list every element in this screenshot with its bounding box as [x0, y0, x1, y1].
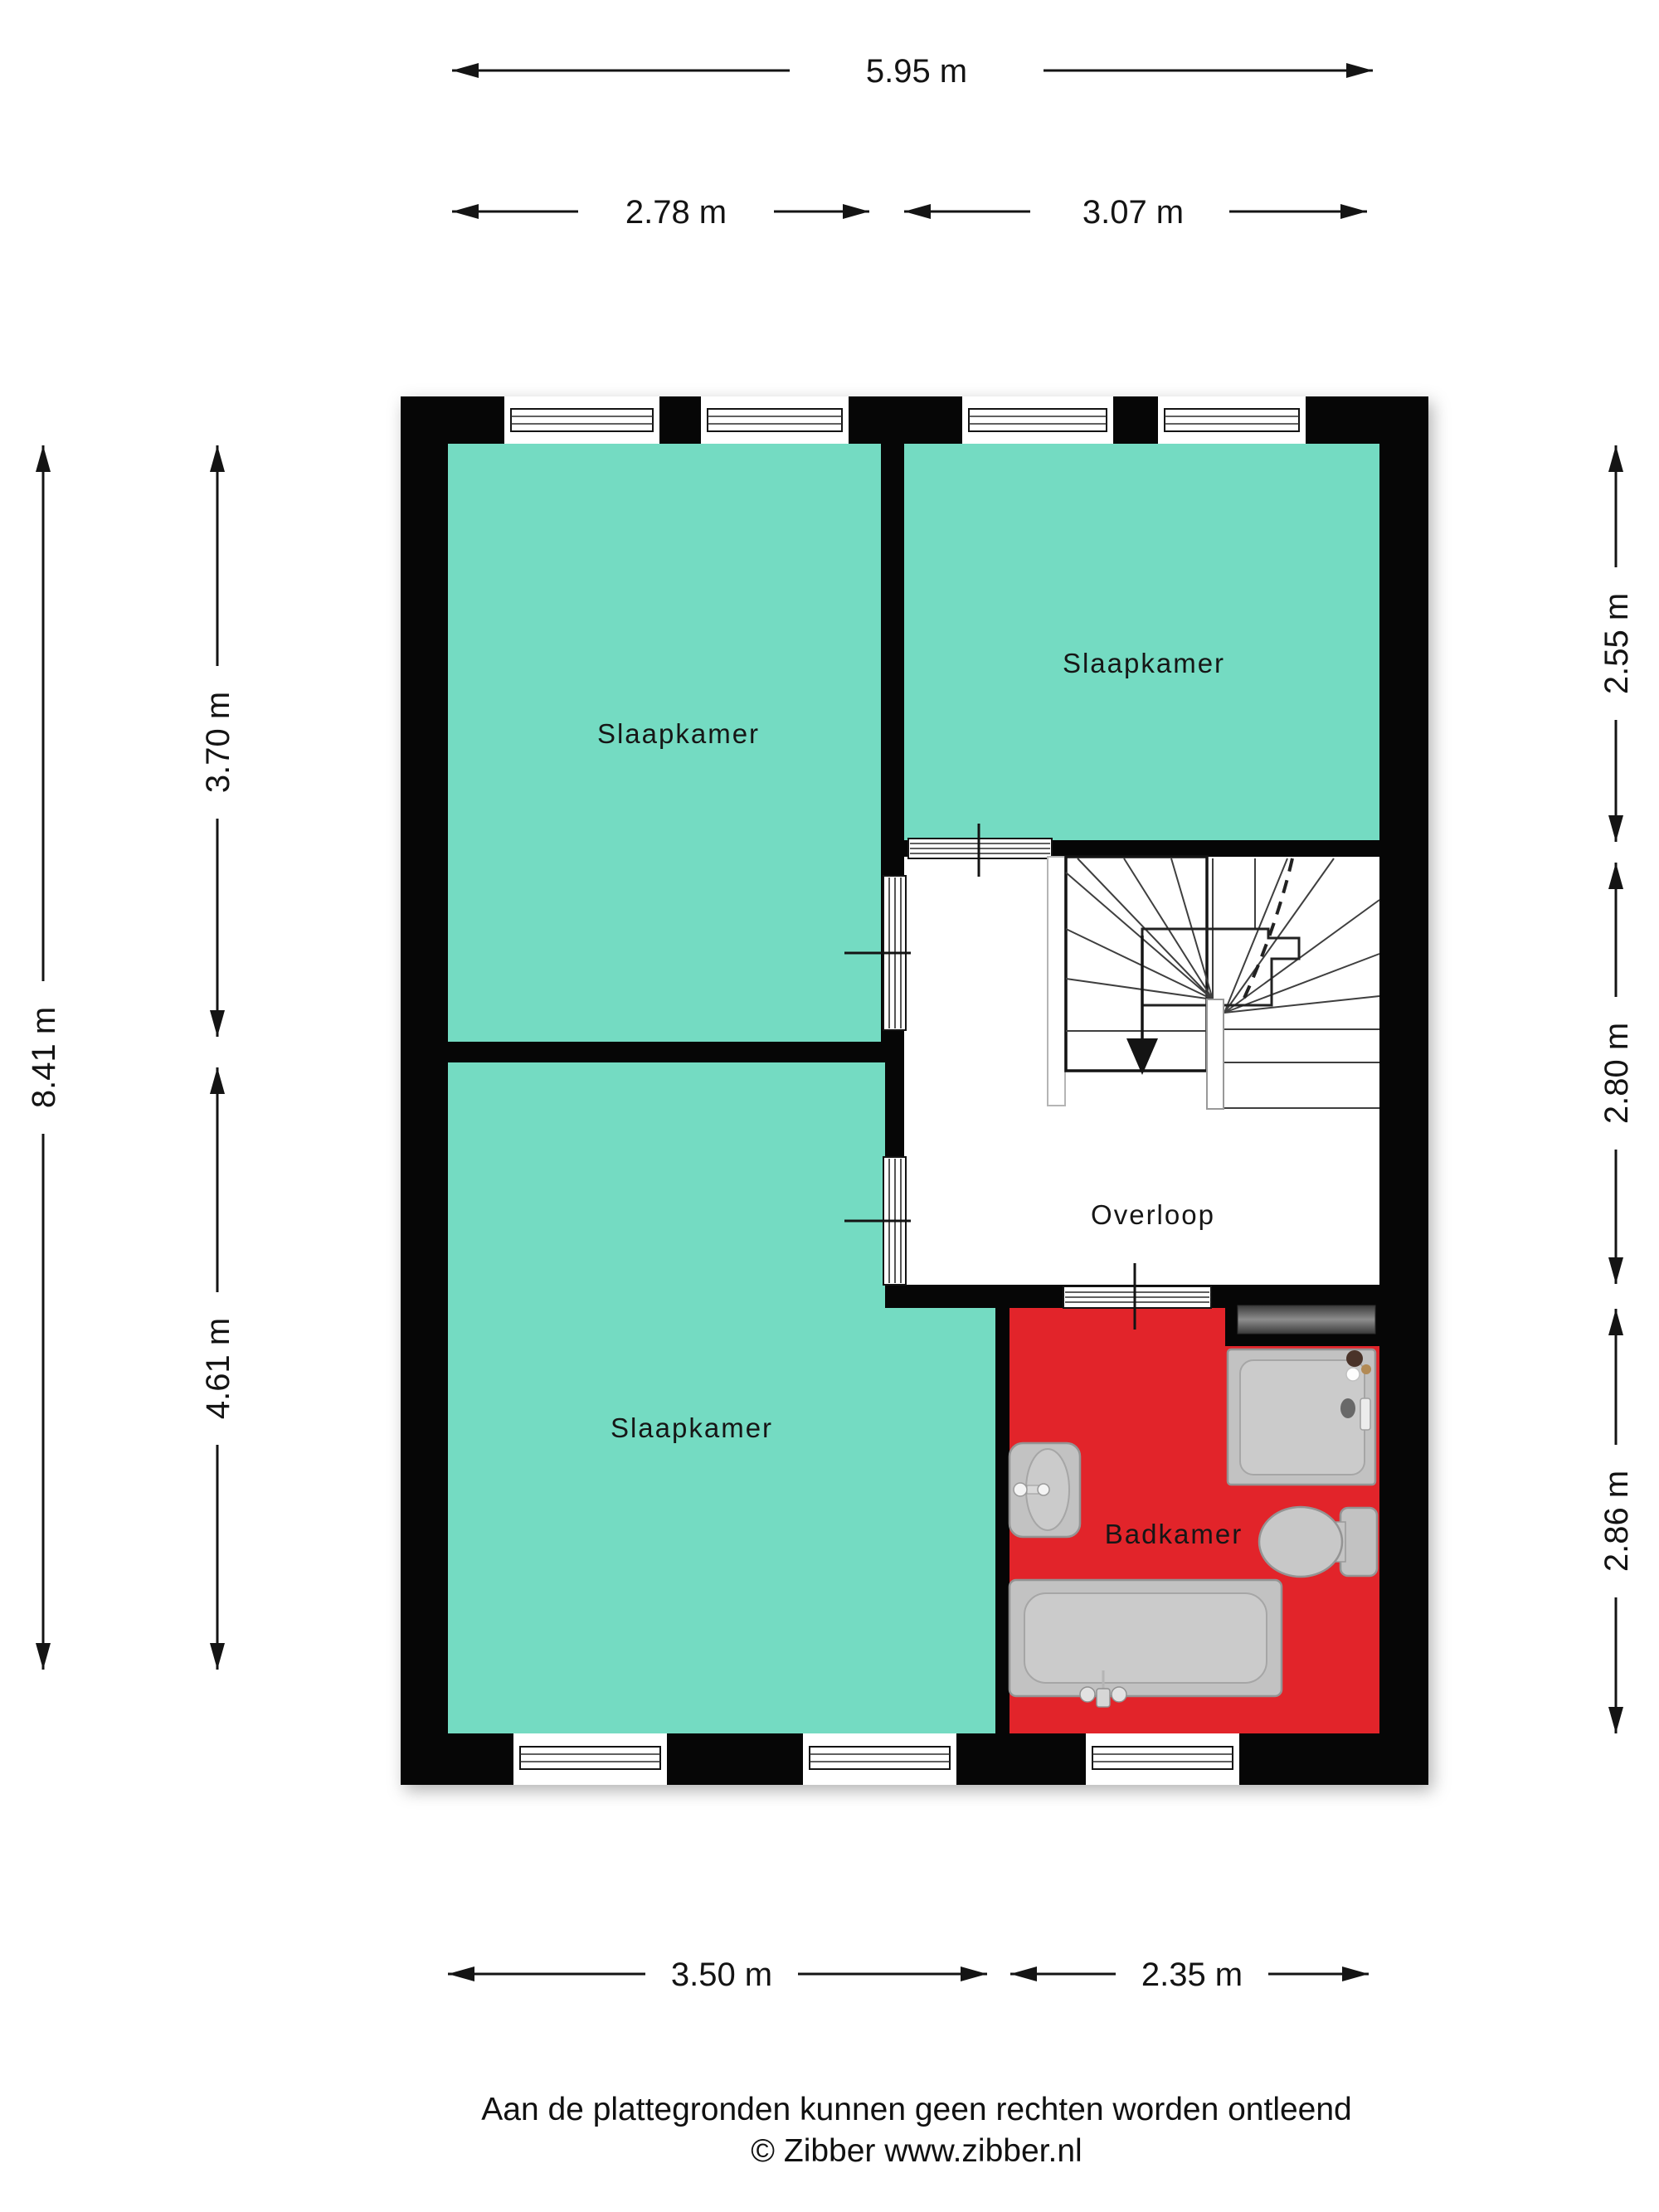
bathtub-faucet-icon: [1097, 1689, 1110, 1707]
arrow-up-icon: [1608, 445, 1623, 472]
shower-head-icon: [1340, 1398, 1355, 1418]
shower-drain-icon: [1346, 1350, 1363, 1367]
shower: [1228, 1349, 1375, 1485]
footer-disclaimer: Aan de plattegronden kunnen geen rechten…: [481, 2092, 1352, 2127]
room-slaapkamer-top-right: [904, 444, 1379, 840]
dimension-top-right-segment: 3.07 m: [904, 194, 1367, 231]
window-top-2: [701, 396, 849, 444]
arrow-up-icon: [210, 1067, 225, 1094]
arrow-up-icon: [1608, 863, 1623, 889]
dimension-right-middle-segment: 2.80 m: [1598, 863, 1635, 1284]
dimension-left-upper-segment: 3.70 m: [200, 445, 236, 1037]
arrow-right-icon: [1346, 63, 1373, 78]
arrow-right-icon: [961, 1966, 987, 1981]
arrow-down-icon: [1608, 1707, 1623, 1733]
sink: [1010, 1443, 1080, 1537]
arrow-right-icon: [843, 204, 869, 219]
arrow-down-icon: [1608, 815, 1623, 842]
window-top-1: [504, 396, 659, 444]
dimension-label: 2.86 m: [1598, 1471, 1635, 1572]
bathtub: [1010, 1580, 1282, 1707]
arrow-up-icon: [36, 445, 51, 472]
dimension-label: 3.50 m: [671, 1957, 772, 1993]
room-label-slaapkamer-bottom: Slaapkamer: [611, 1412, 773, 1443]
arrow-down-icon: [36, 1643, 51, 1670]
dimension-label: 3.07 m: [1082, 194, 1184, 231]
arrow-left-icon: [1010, 1966, 1037, 1981]
dimension-bottom-right-segment: 2.35 m: [1010, 1957, 1369, 1993]
dimension-label: 2.55 m: [1598, 593, 1635, 694]
arrow-up-icon: [1608, 1309, 1623, 1335]
radiator: [1225, 1285, 1379, 1346]
window-top-3: [962, 396, 1113, 444]
dimension-left-lower-segment: 4.61 m: [200, 1067, 236, 1670]
dimension-left-total: 8.41 m: [26, 445, 62, 1670]
arrow-right-icon: [1342, 1966, 1369, 1981]
window-bottom-2: [803, 1733, 956, 1785]
dimension-label: 4.61 m: [200, 1318, 236, 1419]
stair-newel: [1207, 999, 1224, 1109]
room-label-badkamer: Badkamer: [1105, 1519, 1243, 1549]
arrow-down-icon: [1608, 1257, 1623, 1284]
footer-credit: © Zibber www.zibber.nl: [751, 2133, 1082, 2169]
arrow-left-icon: [448, 1966, 474, 1981]
dimension-right-lower-segment: 2.86 m: [1598, 1309, 1635, 1733]
window-bottom-1: [513, 1733, 667, 1785]
dimension-label: 2.78 m: [625, 194, 727, 231]
toilet-bowl: [1259, 1507, 1342, 1577]
dimension-label: 2.35 m: [1141, 1957, 1243, 1993]
arrow-left-icon: [452, 63, 479, 78]
dimension-label: 5.95 m: [866, 53, 967, 90]
dimension-label: 3.70 m: [200, 692, 236, 793]
arrow-up-icon: [210, 445, 225, 472]
arrow-right-icon: [1340, 204, 1367, 219]
arrow-left-icon: [904, 204, 931, 219]
room-label-slaapkamer-top-right: Slaapkamer: [1063, 648, 1225, 678]
stair-banister-left: [1048, 857, 1065, 1106]
dimension-top-left-segment: 2.78 m: [452, 194, 869, 231]
dimension-bottom-left-segment: 3.50 m: [448, 1957, 987, 1993]
window-top-4: [1158, 396, 1306, 444]
toilet: [1259, 1507, 1377, 1577]
dimension-top-total: 5.95 m: [452, 53, 1373, 90]
window-bottom-3: [1086, 1733, 1239, 1785]
room-label-overloop: Overloop: [1091, 1199, 1215, 1230]
room-label-slaapkamer-top-left: Slaapkamer: [597, 718, 760, 749]
dimension-label: 8.41 m: [26, 1007, 62, 1108]
arrow-down-icon: [210, 1643, 225, 1670]
dimension-right-upper-segment: 2.55 m: [1598, 445, 1635, 842]
arrow-down-icon: [210, 1010, 225, 1037]
shower-rail: [1360, 1398, 1370, 1430]
dimension-label: 2.80 m: [1598, 1023, 1635, 1124]
arrow-left-icon: [452, 204, 479, 219]
building: [401, 396, 1428, 1785]
floor-plan: 5.95 m 2.78 m 3.07 m 8.41 m 3.70 m 4.61 …: [0, 0, 1659, 2212]
